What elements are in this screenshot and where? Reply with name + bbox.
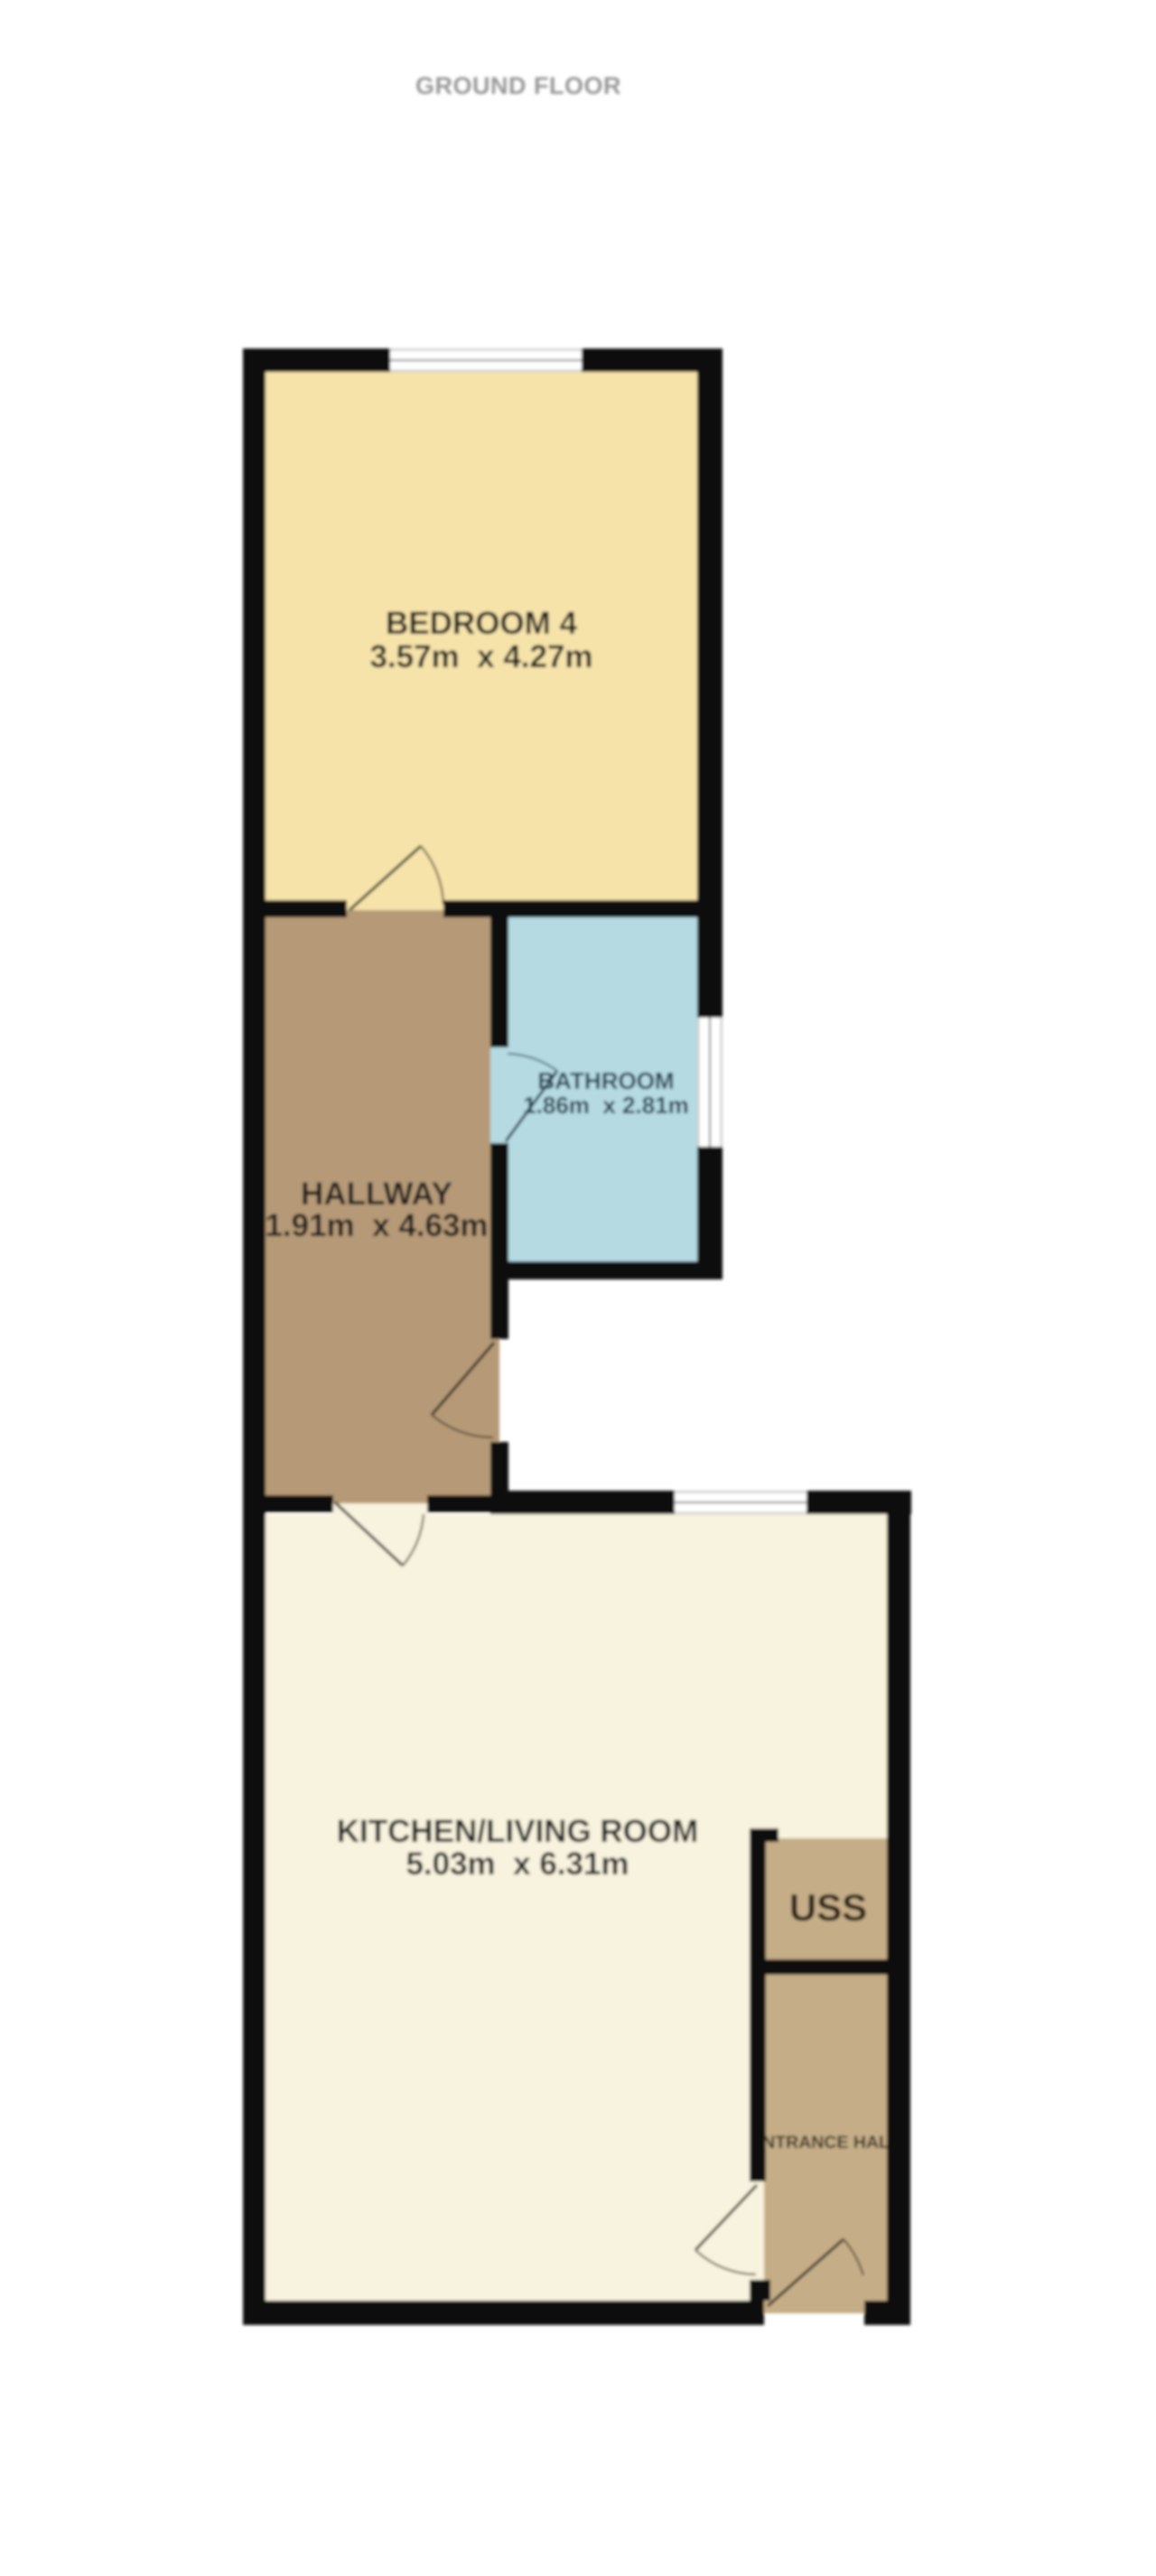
svg-text:1.91m x 4.63m: 1.91m x 4.63m <box>265 1208 488 1243</box>
svg-text:ENTRANCE HALL: ENTRANCE HALL <box>750 2133 900 2153</box>
svg-text:GROUND FLOOR: GROUND FLOOR <box>415 72 621 99</box>
svg-text:BEDROOM 4: BEDROOM 4 <box>386 606 578 641</box>
svg-text:3.57m x 4.27m: 3.57m x 4.27m <box>369 639 592 674</box>
svg-text:HALLWAY: HALLWAY <box>301 1176 452 1212</box>
svg-text:1.86m x 2.81m: 1.86m x 2.81m <box>523 1092 689 1119</box>
svg-text:5.03m x 6.31m: 5.03m x 6.31m <box>406 1846 629 1882</box>
svg-text:KITCHEN/LIVING ROOM: KITCHEN/LIVING ROOM <box>337 1814 699 1849</box>
svg-text:USS: USS <box>789 1886 867 1929</box>
svg-text:BATHROOM: BATHROOM <box>537 1067 674 1094</box>
